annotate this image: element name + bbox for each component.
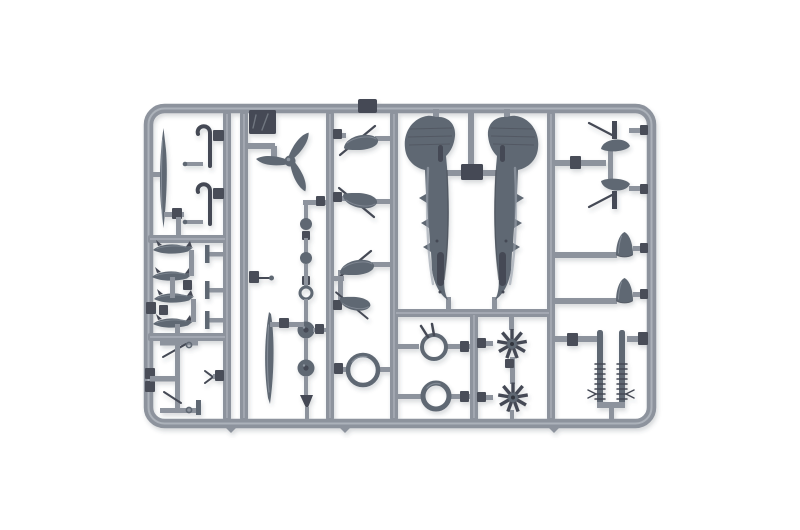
blade-strut-2 bbox=[265, 312, 304, 404]
frame-nub bbox=[224, 426, 238, 433]
radial-engine bbox=[477, 357, 528, 419]
radial-engine bbox=[477, 316, 527, 359]
bomb-parts bbox=[146, 240, 196, 335]
intake-ring-pronged bbox=[397, 324, 470, 359]
ball-part bbox=[300, 252, 312, 264]
propeller bbox=[247, 130, 312, 193]
frame-nub bbox=[547, 426, 561, 433]
column2-parts bbox=[247, 110, 328, 419]
injection-tab bbox=[358, 99, 377, 113]
blade-strut bbox=[150, 128, 184, 238]
hook-strut bbox=[183, 184, 224, 224]
hook-strut bbox=[183, 126, 224, 166]
wheel-chain bbox=[298, 196, 329, 419]
frame-nub bbox=[338, 426, 352, 433]
column3-parts bbox=[333, 126, 393, 385]
tail-wheel bbox=[555, 121, 649, 179]
right-column-parts bbox=[555, 121, 649, 419]
wheel-spat bbox=[333, 188, 390, 217]
pin-ball-part bbox=[249, 271, 274, 283]
ball-part bbox=[300, 218, 312, 230]
bottom-grid-parts bbox=[397, 316, 528, 419]
intake-ring-thick bbox=[397, 383, 470, 409]
fuselage-half-left bbox=[405, 116, 455, 300]
wheel-spat bbox=[336, 251, 390, 300]
t-bulkheads bbox=[205, 245, 224, 329]
spinner-cone bbox=[555, 278, 648, 304]
photo-stage: Photograph of a grey injection-moulded p… bbox=[0, 0, 800, 530]
exhaust-strips bbox=[555, 330, 649, 419]
left-column-parts bbox=[145, 126, 225, 415]
sprue bbox=[145, 99, 652, 433]
cowl-ring bbox=[334, 355, 393, 385]
fuselage-half-right bbox=[488, 116, 538, 300]
sprue-photo: Photograph of a grey injection-moulded p… bbox=[0, 0, 800, 530]
fuselage-section bbox=[405, 109, 539, 311]
tail-wheel bbox=[589, 179, 649, 209]
connector-block bbox=[461, 164, 483, 180]
gear-door-struts bbox=[145, 341, 225, 415]
wheel-spat bbox=[333, 126, 390, 155]
small-ring bbox=[300, 287, 312, 299]
spinner-cone bbox=[555, 232, 648, 258]
